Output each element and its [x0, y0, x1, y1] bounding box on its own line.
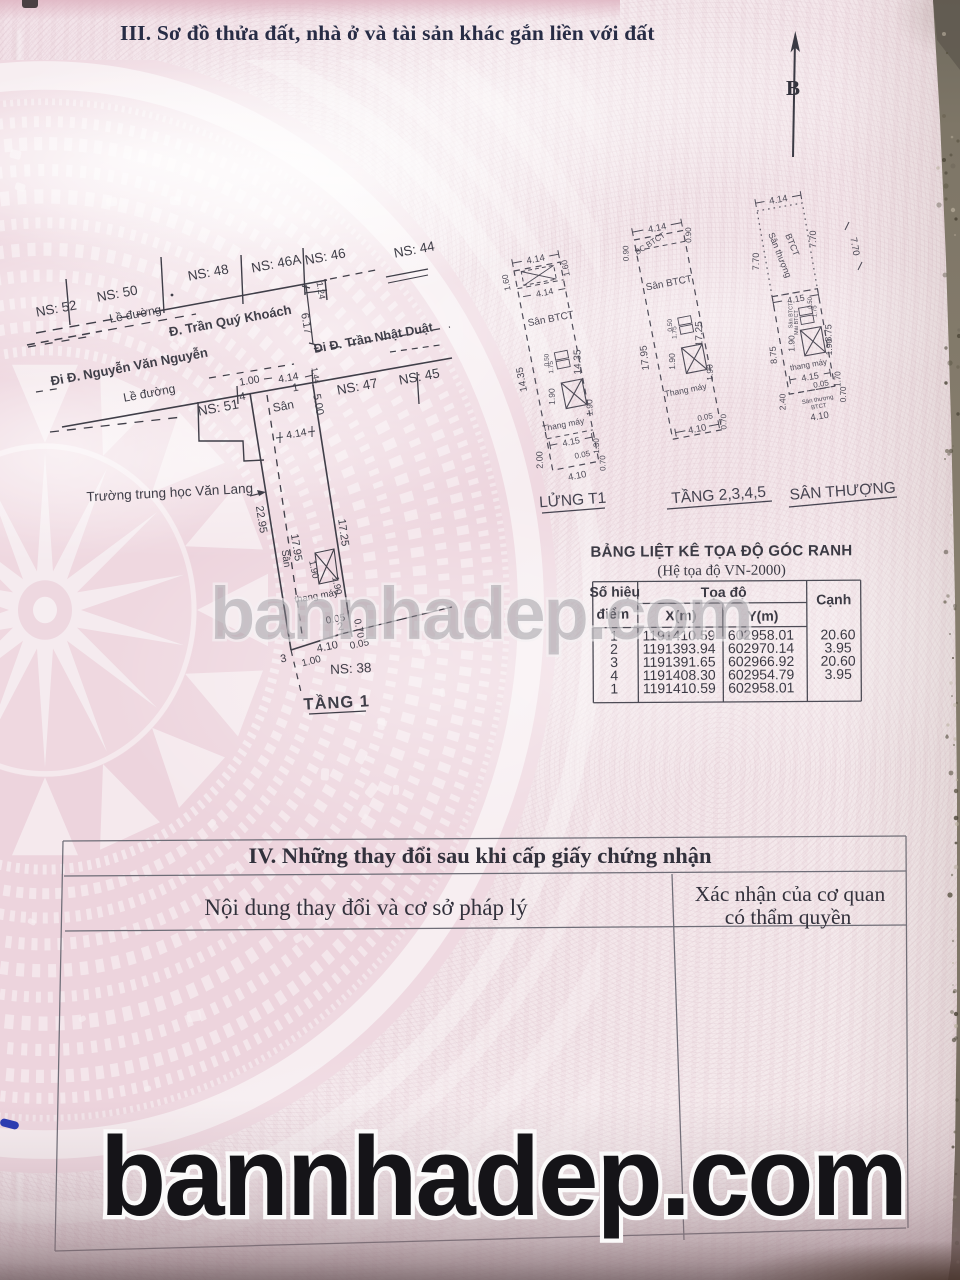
svg-text:bannhadep.com: bannhadep.com — [100, 1114, 906, 1239]
